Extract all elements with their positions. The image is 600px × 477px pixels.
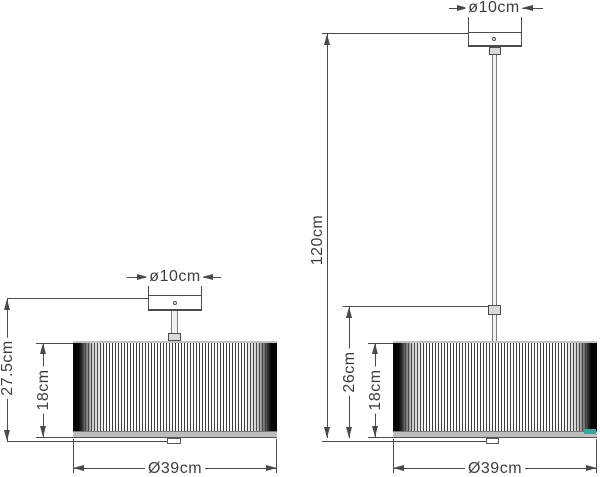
left-shade-dim-arrow-down-icon [40,426,46,437]
left-diameter-arrow-left-icon [73,465,84,471]
right-suspension-arrow-down-icon [324,427,330,438]
left-shade-diameter-label: Ø39cm [145,460,205,477]
right-suspension-arrow-up-icon [324,34,330,45]
right-shade-ext-bottom [368,437,393,438]
left-canopy-diameter-label: ø10cm [146,268,203,286]
left-shade-height-label: 18cm [35,366,53,413]
right-canopy-dim-arrow-left-icon [522,5,533,11]
right-body-arrow-down-icon [346,427,352,438]
right-suspension-ext-bottom [322,441,486,442]
left-drum-shade [73,341,277,438]
right-diameter-arrow-right-icon [586,465,597,471]
left-total-ext-bottom [7,441,168,442]
left-total-dim-arrow-down-icon [4,430,10,441]
lamp-dimension-drawing: ø10cm 27.5cm 18cm Ø39cm [0,0,600,477]
right-shade-highlight-mark [584,429,596,434]
right-drum-shade [393,341,597,438]
right-suspension-height-label: 120cm [309,212,327,269]
right-canopy-connector [489,47,501,55]
right-diameter-arrow-left-icon [393,465,404,471]
right-bottom-finial [486,438,499,444]
right-lower-stem [492,315,497,341]
left-stem-connector [168,333,181,341]
left-total-dim-arrow-up-icon [4,299,10,310]
right-shade-bottom-rim [393,431,597,437]
right-rod-connector [488,305,501,315]
right-body-arrow-up-icon [346,307,352,318]
right-body-ext-top [343,306,490,307]
right-shade-height-label: 18cm [367,366,385,413]
right-canopy-screw-dot [492,37,496,41]
left-shade-bottom-rim [73,431,277,437]
left-shade-ext-bottom [36,437,73,438]
right-suspension-rod [492,55,497,305]
right-shade-dim-arrow-up-icon [372,343,378,354]
left-canopy-screw-dot [173,301,177,305]
left-bottom-finial [167,438,181,444]
right-shade-diameter-label: Ø39cm [465,460,525,477]
right-suspension-ext-top [322,33,468,34]
left-shade-dim-arrow-up-icon [40,343,46,354]
left-total-height-label: 27.5cm [0,337,17,398]
right-body-height-label: 26cm [341,348,359,395]
right-canopy-diameter-label: ø10cm [465,0,522,17]
left-total-ext-top [7,298,148,299]
left-diameter-arrow-right-icon [266,465,277,471]
right-suspension-dim-line [327,34,328,438]
right-shade-dim-arrow-down-icon [372,426,378,437]
